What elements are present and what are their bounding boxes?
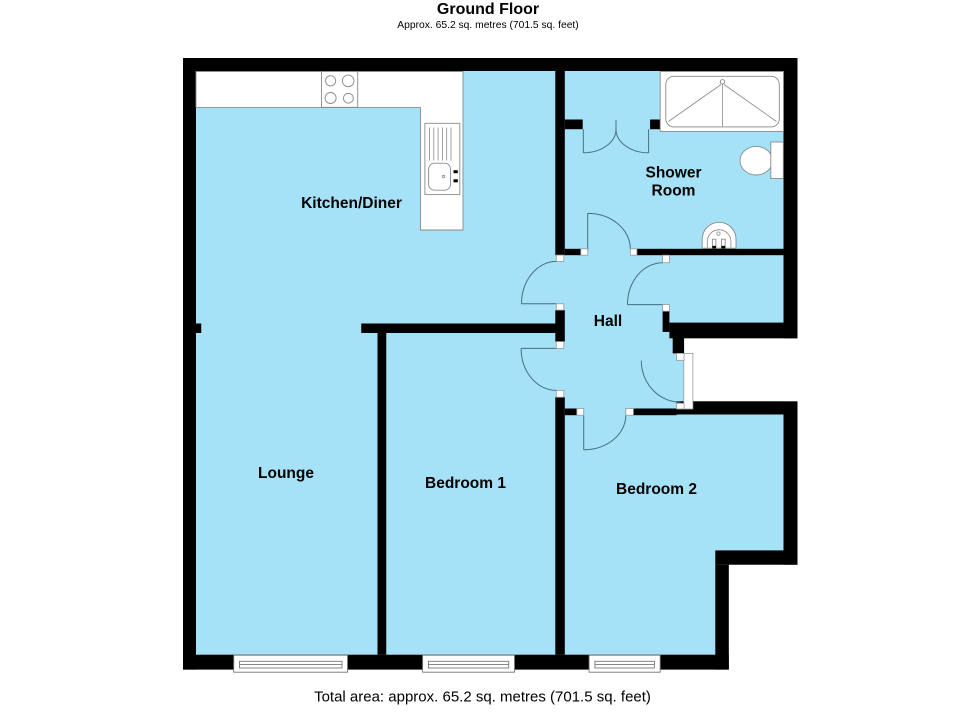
svg-text:Ground Floor: Ground Floor bbox=[437, 1, 539, 18]
svg-text:Approx. 65.2 sq. metres (701.5: Approx. 65.2 sq. metres (701.5 sq. feet) bbox=[397, 20, 578, 31]
svg-text:Bedroom 1: Bedroom 1 bbox=[425, 475, 506, 492]
svg-text:Kitchen/Diner: Kitchen/Diner bbox=[301, 195, 402, 212]
svg-text:Hall: Hall bbox=[594, 313, 622, 330]
svg-text:Bedroom 2: Bedroom 2 bbox=[616, 481, 697, 498]
svg-text:Lounge: Lounge bbox=[258, 465, 314, 482]
svg-text:Total area: approx. 65.2 sq. m: Total area: approx. 65.2 sq. metres (701… bbox=[314, 689, 651, 706]
svg-text:Room: Room bbox=[652, 183, 696, 200]
svg-text:Shower: Shower bbox=[646, 165, 702, 182]
